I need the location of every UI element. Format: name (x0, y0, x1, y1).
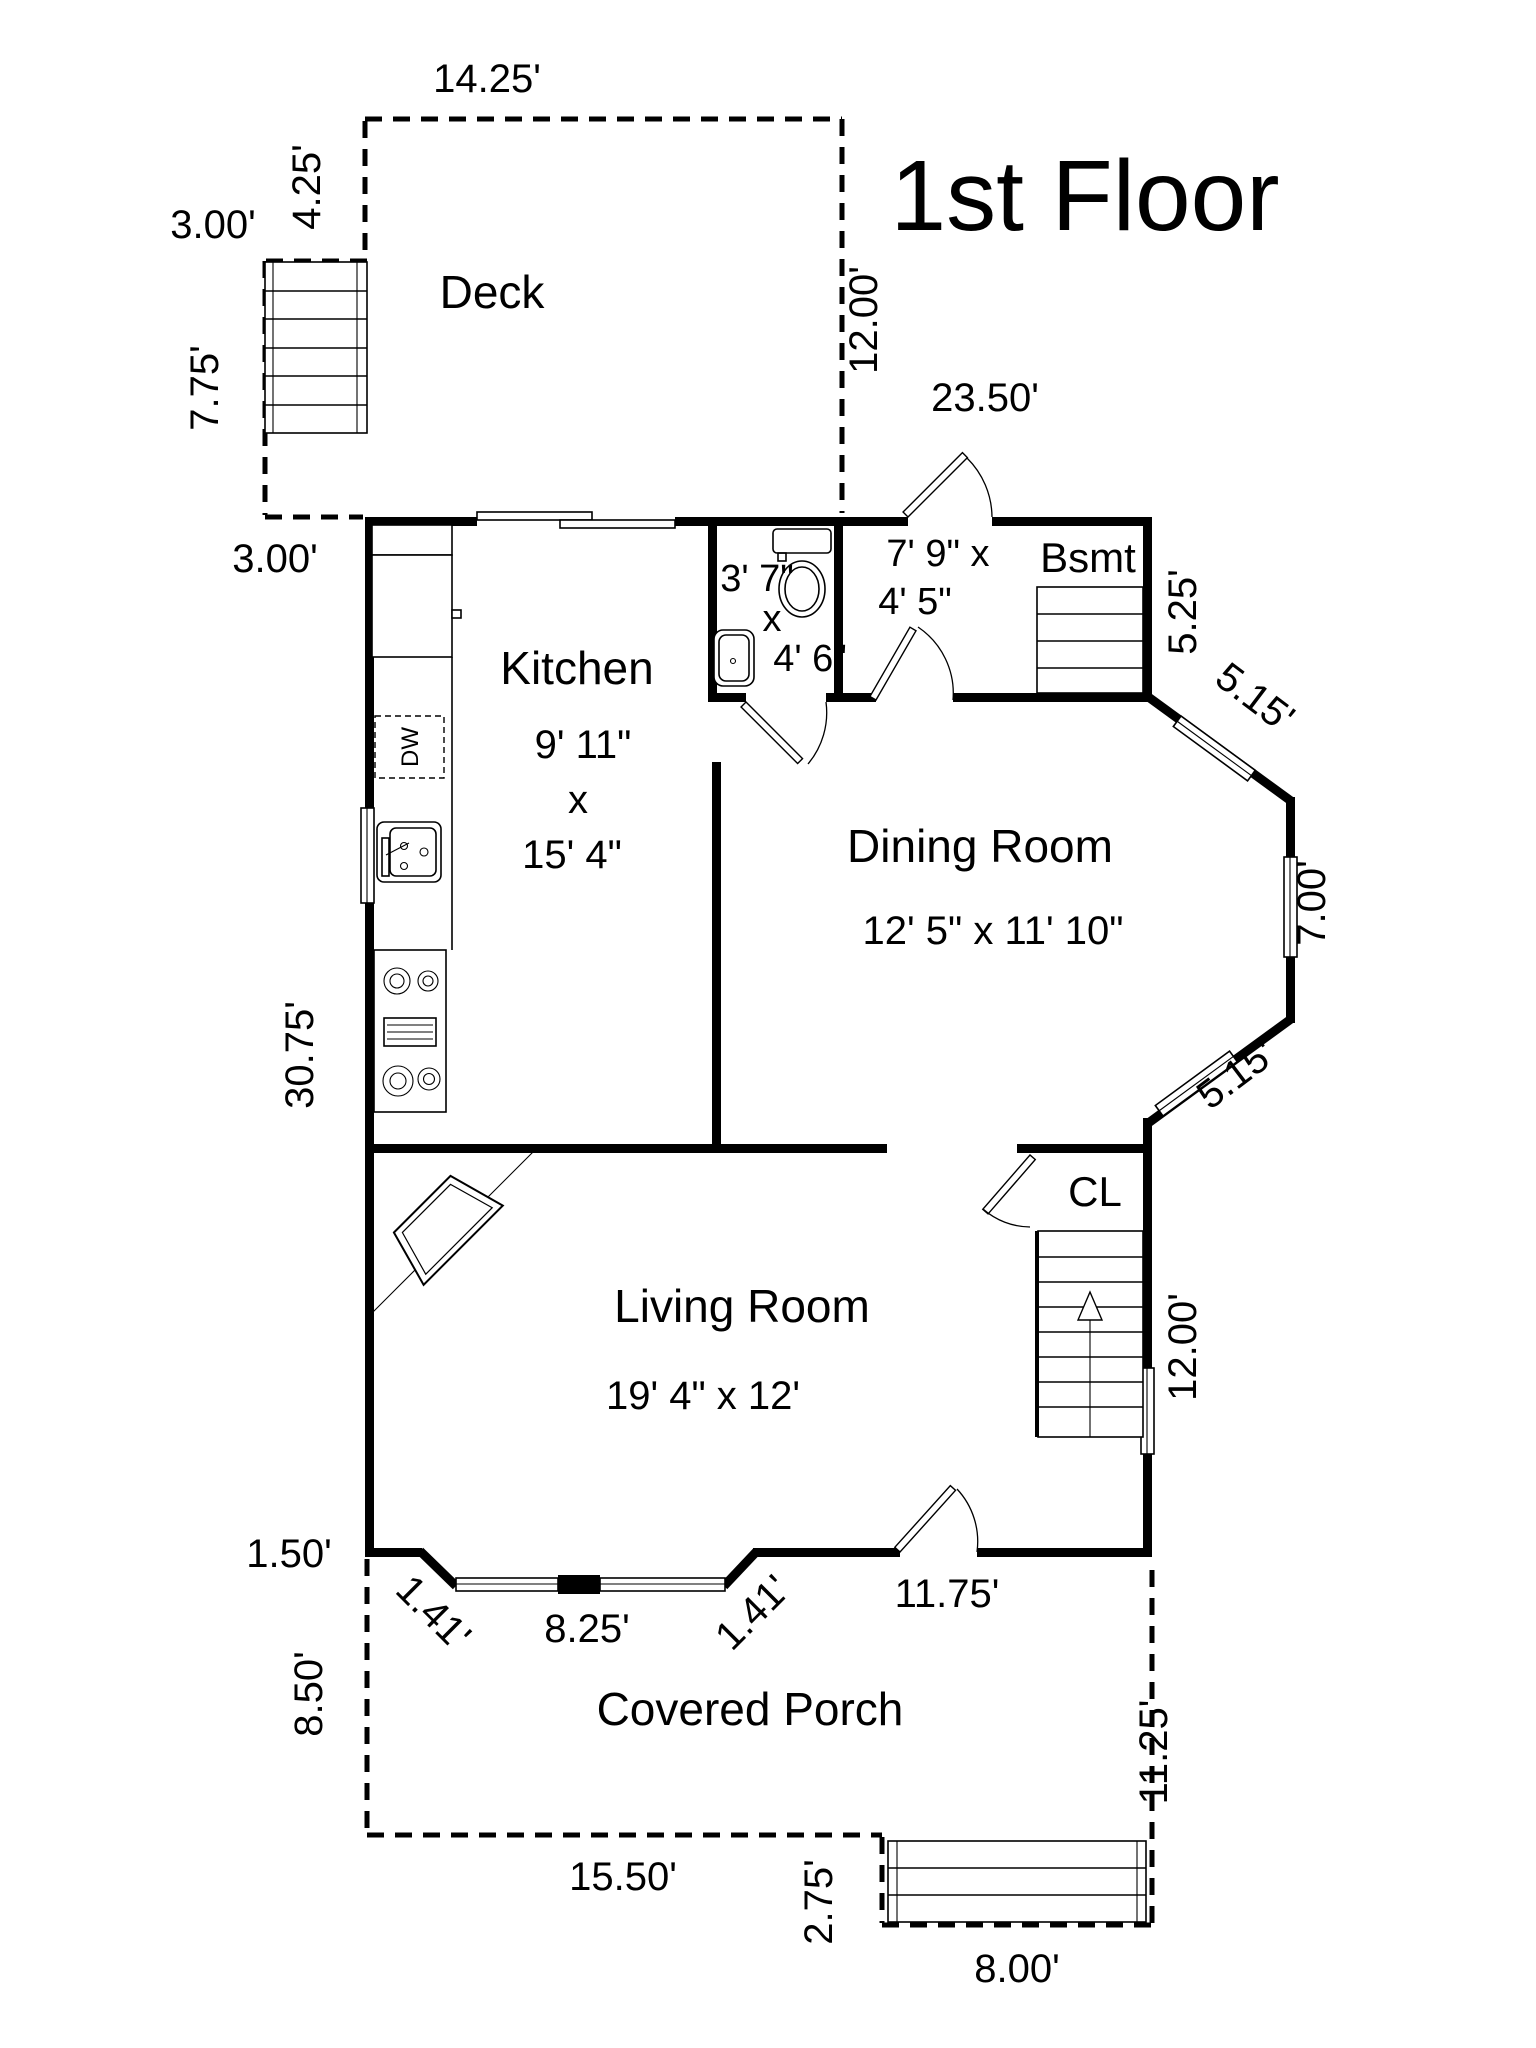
dim-porch-left: 8.50' (287, 1651, 331, 1737)
covered-porch-label: Covered Porch (597, 1683, 904, 1735)
dishwasher-label: DW (397, 727, 424, 767)
fireplace (372, 1150, 535, 1313)
dim-bay-upper: 5.15' (1207, 654, 1302, 741)
dim-stoop-side: 2.75' (797, 1859, 841, 1945)
wall-hall-a (708, 693, 746, 702)
bathroom-door-swing-arc (808, 702, 827, 764)
dim-bottom-left: 1.50' (246, 1532, 332, 1576)
living-room-dims: 19' 4" x 12' (606, 1374, 800, 1418)
closet-label: CL (1068, 1168, 1122, 1215)
bathroom-door-leaf (741, 702, 803, 764)
refrigerator (372, 555, 452, 657)
hall-door-swing-arc (918, 627, 953, 700)
porch-steps-box (888, 1841, 1146, 1922)
stove (374, 950, 446, 1112)
basement-stairs (1037, 587, 1143, 693)
dim-deck-right: 12.00' (842, 266, 886, 374)
main-staircase (1037, 1231, 1143, 1437)
wall-bottom-b (753, 1548, 900, 1557)
wall-kitchen-divider (712, 762, 721, 1153)
porch-door (895, 1486, 978, 1552)
bath-dim-2: 4' 6" (773, 638, 847, 680)
kitchen-window (361, 808, 374, 903)
wall-left (365, 517, 374, 1557)
wall-closet-top (1017, 1144, 1152, 1153)
bathroom-sink (714, 630, 754, 686)
bay-window-upper (1173, 716, 1255, 781)
floor-plan-page: DW (0, 0, 1536, 2048)
floor-plan-drawing: DW (0, 0, 1536, 2048)
wall-top-c (992, 517, 1152, 526)
dining-room-dims: 12' 5" x 11' 10" (863, 909, 1124, 953)
basement-stairs-box (1037, 587, 1143, 693)
wall-hall-c (953, 693, 1152, 702)
kitchen-label: Kitchen (500, 642, 653, 694)
dim-deck-stair-height: 7.75' (183, 345, 227, 431)
hall-door-leaf (870, 627, 916, 700)
living-bay-window-left (456, 1578, 558, 1591)
kitchen-dim-2: 15' 4" (522, 833, 622, 877)
porch-steps (888, 1841, 1146, 1922)
dim-porch-bottom: 15.50' (569, 1855, 677, 1899)
bathroom-door (741, 702, 827, 764)
dim-bottom-right: 11.75' (895, 1572, 1000, 1616)
dining-room-label: Dining Room (847, 820, 1113, 872)
dim-deck-stair-width-bottom: 3.00' (232, 537, 318, 581)
closet-door (983, 1155, 1036, 1227)
fireplace-outer (383, 1165, 503, 1285)
kitchen-sink (377, 822, 441, 882)
dim-deck-stair-width: 3.00' (170, 203, 256, 247)
living-bay-mullion (558, 1575, 600, 1594)
closet-door-leaf (983, 1155, 1036, 1214)
wall-stair-right-upper (1143, 1148, 1152, 1370)
dim-deck-top: 14.25' (433, 57, 541, 101)
dim-bay-right: 7.00' (1290, 860, 1334, 946)
dim-porch-right: 11.25' (1132, 1700, 1176, 1805)
porch-door-swing-arc (957, 1489, 978, 1552)
bath-dim-1: 3' 7" (720, 558, 794, 600)
dim-basement-side: 5.25' (1161, 569, 1205, 655)
kitchen-counter-top (372, 525, 452, 555)
refrigerator-handle (452, 610, 461, 618)
dim-bay-lower: 5.15' (1189, 1031, 1284, 1118)
dim-stair-side: 12.00' (1161, 1293, 1205, 1401)
hall-dim-1: 7' 9" x (886, 533, 989, 575)
wall-stair-right-lower (1143, 1452, 1152, 1557)
dim-deck-left: 4.25' (285, 144, 329, 230)
wall-living-divider (365, 1144, 887, 1153)
dim-bay-bottom: 8.25' (544, 1607, 630, 1651)
dim-house-top: 23.50' (931, 376, 1039, 420)
living-bay-window-right (600, 1578, 725, 1591)
porch-door-leaf (895, 1486, 956, 1552)
deck-label: Deck (440, 266, 546, 318)
dishwasher: DW (375, 716, 444, 778)
wall-chamfer-right (724, 1551, 757, 1586)
wall-bottom-a (365, 1548, 422, 1557)
basement-label: Bsmt (1040, 534, 1136, 581)
deck-door-leaf (903, 453, 967, 517)
toilet-tank (773, 529, 831, 553)
sliding-door-panel-2 (560, 520, 675, 528)
bath-dim-x: x (763, 598, 782, 640)
dim-left-wall: 30.75' (278, 1001, 322, 1109)
kitchen-dim-x: x (568, 778, 588, 822)
wall-bottom-c (977, 1548, 1152, 1557)
kitchen-sink-outer (377, 822, 441, 882)
living-room-label: Living Room (614, 1280, 870, 1332)
sliding-door-panel-1 (477, 512, 592, 520)
deck-door (903, 453, 992, 517)
kitchen-dim-1: 9' 11" (535, 723, 632, 767)
kitchen-fixtures: DW (372, 525, 461, 1112)
dim-stoop-bottom: 8.00' (974, 1947, 1060, 1991)
deck-door-swing-arc (967, 458, 992, 517)
wall-hall-b (826, 693, 876, 702)
page-title: 1st Floor (890, 140, 1279, 252)
deck-stairs (265, 262, 367, 433)
hall-dim-2: 4' 5" (878, 581, 952, 623)
hall-door (870, 627, 953, 700)
wall-right-upper (1143, 517, 1152, 702)
